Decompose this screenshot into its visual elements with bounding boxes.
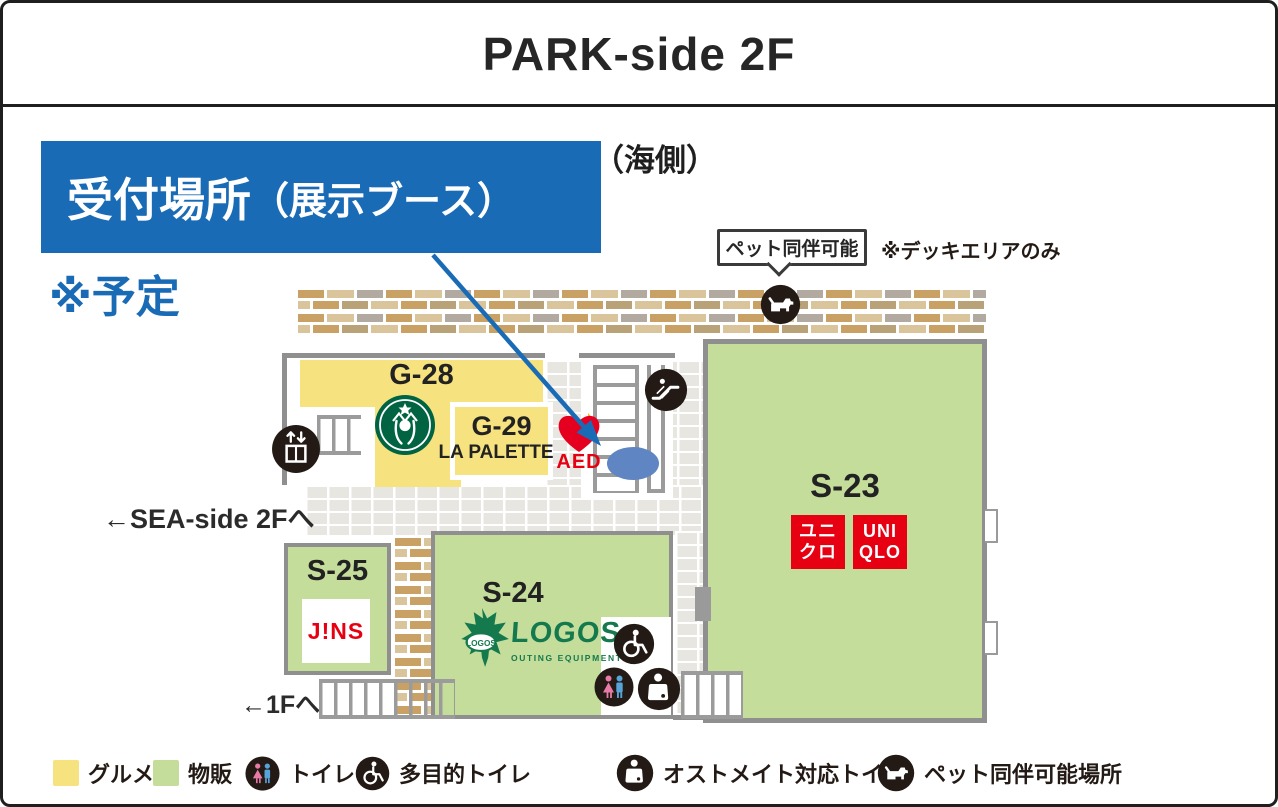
starbucks-logo xyxy=(374,394,436,456)
reception-callout: 受付場所（展示ブース） xyxy=(41,141,601,253)
staircase xyxy=(317,415,361,455)
shop-g28-label: G-28 xyxy=(300,359,543,392)
door xyxy=(695,587,711,621)
aed-label: AED xyxy=(551,451,607,474)
uniqlo-logo-jp: ユニ クロ xyxy=(791,515,845,569)
escalator-icon xyxy=(644,368,688,412)
shop-s25-label: S-25 xyxy=(284,555,391,588)
legend-accessible-toilet: 多目的トイレ xyxy=(355,747,531,799)
uniqlo-en-top: UNI xyxy=(863,521,897,542)
planned-note: ※予定 xyxy=(49,261,180,325)
wall xyxy=(284,353,545,358)
reception-callout-main: 受付場所 xyxy=(67,164,251,230)
shop-g29-label: G-29 xyxy=(455,411,548,442)
wall xyxy=(579,353,675,358)
jins-logo-text: J!NS xyxy=(308,618,364,645)
toilet-icon xyxy=(594,667,634,707)
staircase xyxy=(681,671,743,719)
staircase-1f xyxy=(319,679,455,719)
page-title: PARK-side 2F xyxy=(483,27,796,81)
shop-s23-label: S-23 xyxy=(703,467,987,505)
logos-logo-text: LOGOS OUTING EQUIPMENT xyxy=(511,617,623,663)
pet-allowed-bubble-label: ペット同伴可能 xyxy=(725,234,858,261)
pet-allowed-icon xyxy=(877,754,915,792)
accessible-toilet-icon xyxy=(613,623,655,665)
legend-retail-label: 物販 xyxy=(188,757,232,789)
floor-map: PARK-side 2F xyxy=(0,0,1278,807)
gourmet-swatch xyxy=(53,760,79,786)
legend-accessible-toilet-label: 多目的トイレ xyxy=(399,757,531,789)
ostomate-toilet-icon xyxy=(637,667,681,711)
pet-allowed-bubble: ペット同伴可能 xyxy=(717,229,867,266)
logos-tagline: OUTING EQUIPMENT xyxy=(511,653,623,663)
jins-logo: J!NS xyxy=(302,599,370,663)
legend-toilet-label: トイレ xyxy=(289,757,355,789)
legend-toilet: トイレ xyxy=(245,747,355,799)
legend-ostomate-label: オストメイト対応トイレ xyxy=(663,757,905,789)
deck-only-note: ※デッキエリアのみ xyxy=(881,235,1060,264)
retail-swatch xyxy=(153,760,179,786)
deck-brick-wall xyxy=(298,287,986,335)
legend-pet-allowed-label: ペット同伴可能場所 xyxy=(924,757,1122,789)
accessible-toilet-icon xyxy=(355,756,390,791)
legend-pet-allowed: ペット同伴可能場所 xyxy=(877,747,1122,799)
toilet-icon xyxy=(245,756,280,791)
logos-leaf-icon: LOGOS xyxy=(453,607,511,669)
uniqlo-logo-en: UNI QLO xyxy=(853,515,907,569)
aed-heart-icon xyxy=(555,411,603,455)
reception-callout-paren: （展示ブース） xyxy=(251,170,515,225)
uniqlo-en-bottom: QLO xyxy=(859,542,901,563)
elevator-icon xyxy=(271,424,321,474)
ostomate-toilet-icon xyxy=(616,754,654,792)
pet-allowed-icon xyxy=(760,284,801,325)
uniqlo-jp-top: ユニ xyxy=(799,521,837,542)
shop-s23-area xyxy=(703,339,987,723)
sea-side-label: （海側） xyxy=(593,135,717,180)
door xyxy=(985,509,998,543)
shop-g29-name: LA PALETTE xyxy=(431,442,561,464)
shop-s24-label: S-24 xyxy=(458,577,568,610)
reception-marker xyxy=(607,447,659,480)
svg-text:LOGOS: LOGOS xyxy=(466,639,496,648)
legend-retail: 物販 xyxy=(153,747,232,799)
legend-gourmet-label: グルメ xyxy=(88,757,154,789)
first-floor-exit-label: ←1Fへ xyxy=(241,685,320,721)
legend-ostomate: オストメイト対応トイレ xyxy=(616,747,905,799)
door xyxy=(985,621,998,655)
sea-side-exit-label: ←SEA-side 2Fへ xyxy=(103,497,315,536)
uniqlo-jp-bottom: クロ xyxy=(799,542,837,563)
legend-gourmet: グルメ xyxy=(53,747,154,799)
logos-wordmark: LOGOS xyxy=(510,617,624,650)
map-header: PARK-side 2F xyxy=(3,3,1275,107)
